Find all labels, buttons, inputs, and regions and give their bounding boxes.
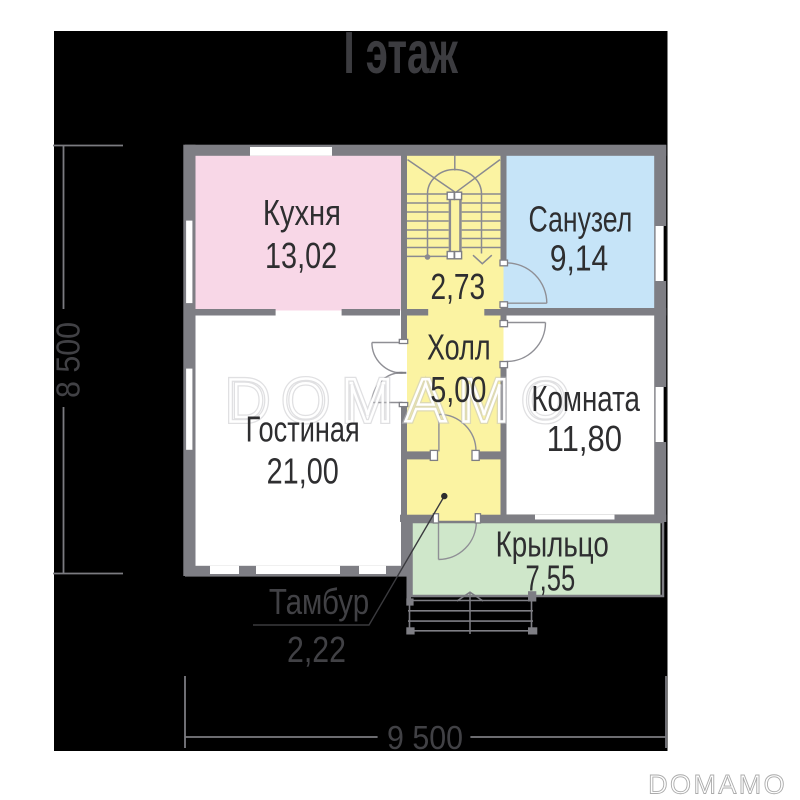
svg-text:2,22: 2,22 xyxy=(287,630,346,670)
svg-text:Тамбур: Тамбур xyxy=(269,582,369,623)
svg-text:DOMAMO: DOMAMO xyxy=(648,770,787,800)
svg-text:21,00: 21,00 xyxy=(267,450,339,491)
svg-text:11,80: 11,80 xyxy=(547,419,622,460)
svg-text:Комната: Комната xyxy=(531,378,640,419)
svg-text:5,00: 5,00 xyxy=(430,369,486,410)
svg-text:Кухня: Кухня xyxy=(263,193,341,234)
svg-text:7,55: 7,55 xyxy=(525,557,575,599)
svg-text:Холл: Холл xyxy=(427,326,491,367)
svg-text:13,02: 13,02 xyxy=(265,235,337,276)
svg-text:2,73: 2,73 xyxy=(430,267,485,307)
svg-text:Гостиная: Гостиная xyxy=(246,409,360,450)
svg-text:Санузел: Санузел xyxy=(529,198,633,239)
svg-text:9,14: 9,14 xyxy=(550,239,608,279)
svg-text:8 500: 8 500 xyxy=(49,322,86,398)
svg-text:9 500: 9 500 xyxy=(387,719,463,756)
svg-text:I этаж: I этаж xyxy=(343,19,458,86)
